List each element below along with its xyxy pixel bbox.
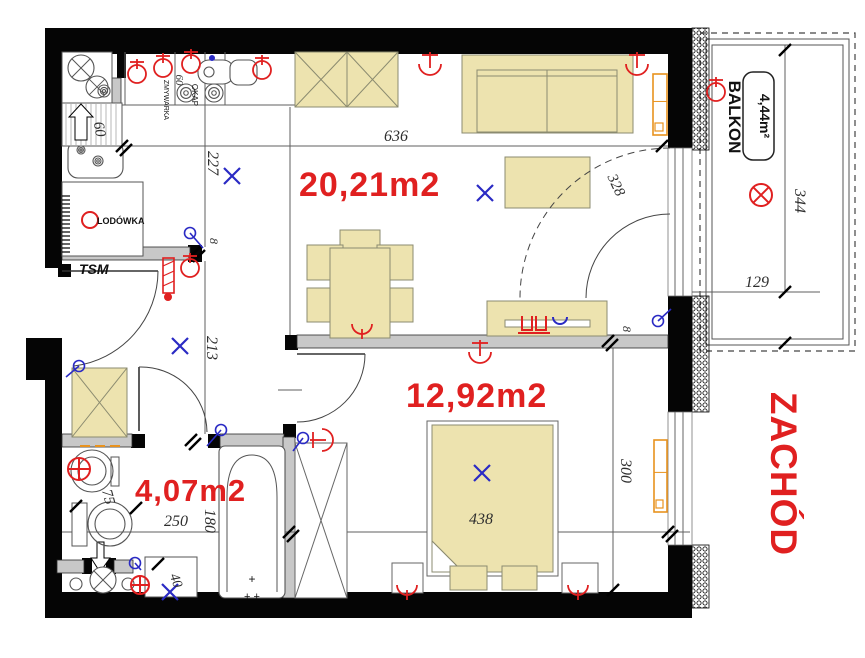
outer-wall: [285, 335, 298, 350]
tub-mark: +: [248, 572, 255, 586]
room-area-label: 4,07m2: [135, 473, 246, 508]
tsm-label: TSM: [79, 261, 109, 277]
dimension-label: 300: [617, 458, 634, 483]
insulation-hatch: [692, 28, 709, 150]
tub-mark: + +: [244, 591, 260, 603]
bed-mattress: [432, 425, 553, 572]
outer-wall: [668, 28, 692, 150]
outer-wall: [45, 352, 62, 618]
dimension-label: 636: [384, 128, 408, 145]
dimension-label: 227: [204, 151, 221, 176]
floor-plan: 20,21m212,92m24,07m2ZACHÓDBALKON4,44m²TS…: [0, 0, 865, 658]
outer-wall: [668, 545, 692, 618]
balcony-area-label: 4,44m²: [757, 94, 773, 139]
room-area-label: 20,21m2: [299, 166, 440, 204]
coffee-table: [505, 157, 590, 208]
window-opening: [668, 148, 692, 296]
floor-plan-drawing: 20,21m212,92m24,07m2ZACHÓDBALKON4,44m²TS…: [0, 0, 865, 658]
outer-wall: [45, 28, 692, 54]
dimension-label: 129: [745, 274, 769, 291]
outer-wall: [208, 434, 220, 448]
pillow: [502, 566, 537, 590]
outer-wall: [45, 592, 690, 618]
fixture-box: [111, 457, 119, 486]
balcony-label: BALKON: [725, 81, 744, 154]
chair: [340, 230, 380, 249]
outer-wall: [131, 434, 145, 448]
dishwasher-label: ZMYWARKA: [162, 80, 169, 121]
window-opening: [668, 412, 692, 545]
dishwasher-size-label: 60: [173, 75, 185, 87]
fridge-label: LODÓWKA: [97, 215, 145, 226]
insulation-hatch: [692, 296, 709, 412]
tv-dresser-slot: [505, 320, 590, 327]
dimension-label: 180: [201, 509, 218, 533]
fixture-round: [198, 60, 234, 84]
dimension-label: 8: [620, 326, 634, 332]
interior-wall: [57, 560, 84, 573]
fixture-box: [72, 503, 87, 546]
room-area-label: 12,92m2: [406, 377, 547, 415]
nightstand: [562, 563, 598, 593]
outer-wall: [45, 28, 62, 268]
outer-wall: [283, 424, 296, 438]
outer-wall: [668, 296, 692, 412]
dining-table: [330, 248, 390, 338]
hood-label: OKAP: [190, 84, 199, 106]
dimension-label: 213: [203, 336, 220, 360]
dimension-label: 250: [164, 513, 188, 530]
orientation-label: ZACHÓD: [763, 392, 805, 556]
dimension-label: 438: [469, 511, 493, 528]
riser-dot: [164, 293, 172, 301]
outer-wall: [26, 338, 62, 380]
dimension-label: 344: [791, 188, 808, 213]
interior-wall: [220, 434, 284, 447]
insulation-hatch: [692, 545, 709, 608]
dimension-label: 8: [207, 238, 221, 244]
faucet-dot: [209, 55, 215, 61]
interior-wall: [112, 78, 121, 105]
pillow: [450, 566, 487, 590]
